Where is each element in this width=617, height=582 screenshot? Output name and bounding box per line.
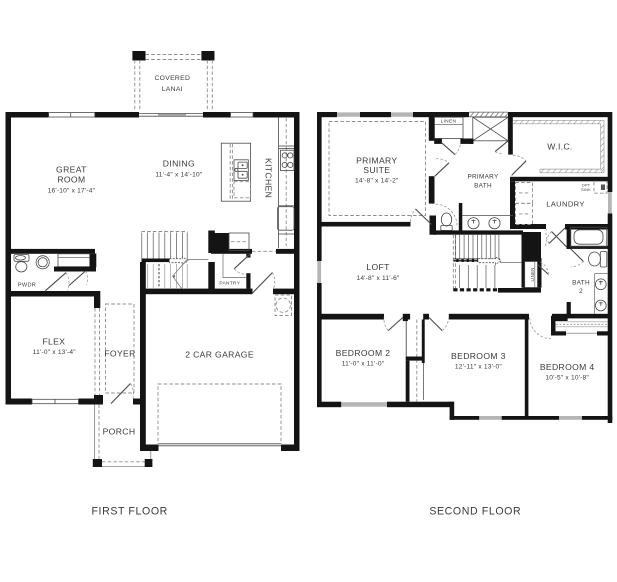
svg-text:SINK: SINK: [581, 188, 591, 192]
svg-text:FLEX: FLEX: [42, 336, 65, 346]
svg-text:PORCH: PORCH: [103, 427, 136, 437]
svg-text:FIRST FLOOR: FIRST FLOOR: [91, 506, 167, 518]
svg-text:ROOM: ROOM: [57, 175, 85, 185]
svg-text:BATH: BATH: [572, 279, 590, 286]
svg-text:LOFT: LOFT: [366, 262, 390, 272]
svg-text:GREAT: GREAT: [56, 165, 87, 175]
svg-text:OPT: OPT: [582, 184, 591, 188]
svg-text:FOYER: FOYER: [104, 349, 135, 359]
svg-text:16'-10" x 17'-4": 16'-10" x 17'-4": [48, 187, 96, 194]
svg-text:BEDROOM 3: BEDROOM 3: [451, 351, 506, 361]
svg-text:PWDR: PWDR: [18, 283, 36, 289]
svg-text:SECOND FLOOR: SECOND FLOOR: [429, 506, 521, 518]
svg-text:12'-11" x 13'-0": 12'-11" x 13'-0": [455, 363, 502, 370]
svg-text:LANAI: LANAI: [162, 86, 183, 93]
svg-text:LINEN: LINEN: [441, 119, 457, 125]
svg-text:10'-5" x 10'-8": 10'-5" x 10'-8": [545, 374, 589, 381]
svg-text:BEDROOM 2: BEDROOM 2: [336, 348, 391, 358]
svg-text:DINING: DINING: [163, 159, 195, 169]
svg-text:2 CAR GARAGE: 2 CAR GARAGE: [185, 349, 254, 359]
svg-text:LINEN: LINEN: [530, 268, 535, 282]
svg-text:11'-0" x 11'-0": 11'-0" x 11'-0": [342, 360, 385, 367]
svg-text:BATH: BATH: [474, 183, 492, 190]
svg-text:KITCHEN: KITCHEN: [264, 158, 274, 198]
svg-text:COVERED: COVERED: [154, 75, 190, 82]
svg-text:PRIMARY: PRIMARY: [467, 174, 499, 181]
svg-text:2: 2: [579, 288, 583, 295]
svg-text:11'-0" x 13'-4": 11'-0" x 13'-4": [33, 349, 77, 356]
svg-text:LAUNDRY: LAUNDRY: [546, 200, 585, 209]
svg-text:11'-4" x 14'-10": 11'-4" x 14'-10": [155, 171, 202, 178]
svg-text:14'-8" x 14'-2": 14'-8" x 14'-2": [355, 178, 399, 185]
svg-text:SUITE: SUITE: [363, 165, 390, 175]
svg-text:14'-8" x 11'-6": 14'-8" x 11'-6": [356, 275, 400, 282]
svg-text:BEDROOM 4: BEDROOM 4: [540, 362, 595, 372]
svg-text:PANTRY: PANTRY: [219, 281, 240, 287]
svg-text:W.I.C.: W.I.C.: [547, 142, 573, 152]
